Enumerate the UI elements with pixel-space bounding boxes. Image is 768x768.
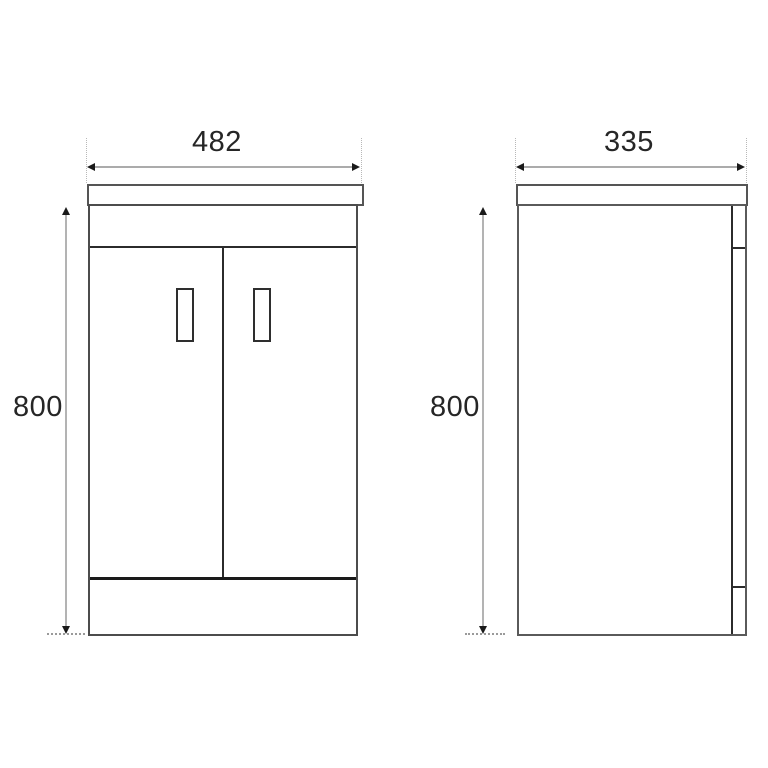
right-door-handle	[253, 288, 271, 342]
side-depth-arrow-left-icon	[516, 163, 524, 171]
side-door-top-joint-line	[733, 247, 745, 249]
front-width-dimension-label: 482	[157, 128, 277, 157]
front-height-arrow-up-icon	[62, 207, 70, 215]
side-depth-dimension-label: 335	[569, 128, 689, 157]
technical-drawing-canvas: 482 800 335 800	[0, 0, 768, 768]
front-plinth-top-line	[90, 577, 356, 580]
side-depth-extension-line-right	[746, 138, 747, 183]
side-countertop	[516, 184, 748, 206]
left-door-handle	[176, 288, 194, 342]
front-door-divider-line	[222, 248, 224, 578]
side-depth-extension-line-left	[515, 138, 516, 183]
front-height-extension-line-bottom	[47, 633, 85, 635]
front-width-extension-line-right	[361, 138, 362, 183]
side-height-arrow-up-icon	[479, 207, 487, 215]
side-door-edge-line	[731, 206, 733, 634]
side-cabinet-body	[517, 204, 747, 636]
front-countertop	[87, 184, 364, 206]
front-height-dimension-label: 800	[8, 393, 68, 422]
side-depth-arrow-right-icon	[737, 163, 745, 171]
front-width-extension-line-left	[86, 138, 87, 183]
side-height-dimension-label: 800	[425, 393, 485, 422]
front-width-dimension-line	[93, 166, 354, 168]
front-width-arrow-left-icon	[87, 163, 95, 171]
side-height-extension-line-bottom	[465, 633, 505, 635]
front-width-arrow-right-icon	[352, 163, 360, 171]
side-height-dimension-line	[482, 214, 484, 631]
side-depth-dimension-line	[522, 166, 738, 168]
front-height-dimension-line	[65, 214, 67, 631]
side-door-bottom-joint-line	[733, 586, 745, 588]
